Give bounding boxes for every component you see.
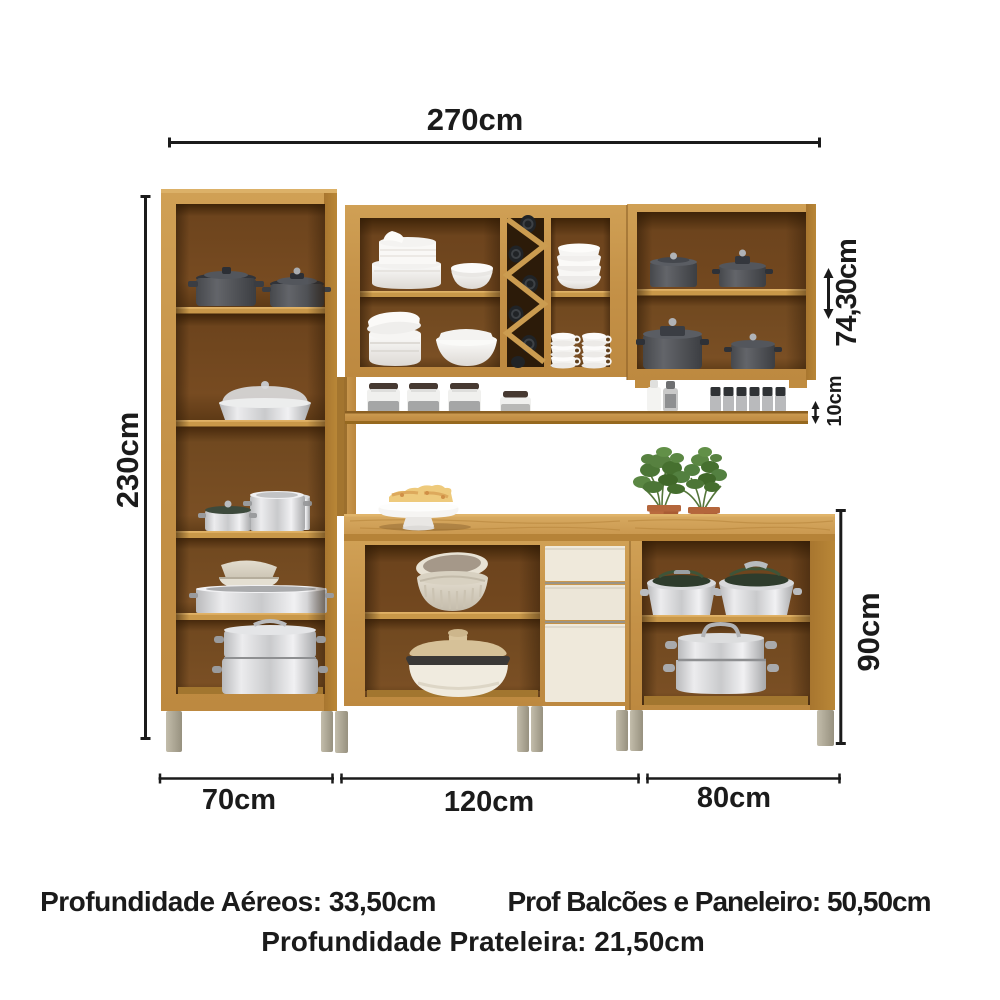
svg-text:80cm: 80cm — [697, 782, 771, 814]
svg-text:270cm: 270cm — [427, 102, 524, 137]
svg-text:74,30cm: 74,30cm — [831, 239, 863, 347]
svg-text:Prof Balcões e Paneleiro: 50,5: Prof Balcões e Paneleiro: 50,50cm — [508, 886, 931, 917]
svg-text:10cm: 10cm — [824, 375, 846, 426]
svg-text:Profundidade Aéreos: 33,50cm: Profundidade Aéreos: 33,50cm — [40, 886, 436, 917]
svg-text:Profundidade Prateleira: 21,50: Profundidade Prateleira: 21,50cm — [261, 926, 705, 957]
svg-text:120cm: 120cm — [444, 786, 534, 818]
svg-text:70cm: 70cm — [202, 784, 276, 816]
svg-text:230cm: 230cm — [110, 412, 145, 509]
svg-text:90cm: 90cm — [851, 592, 886, 671]
